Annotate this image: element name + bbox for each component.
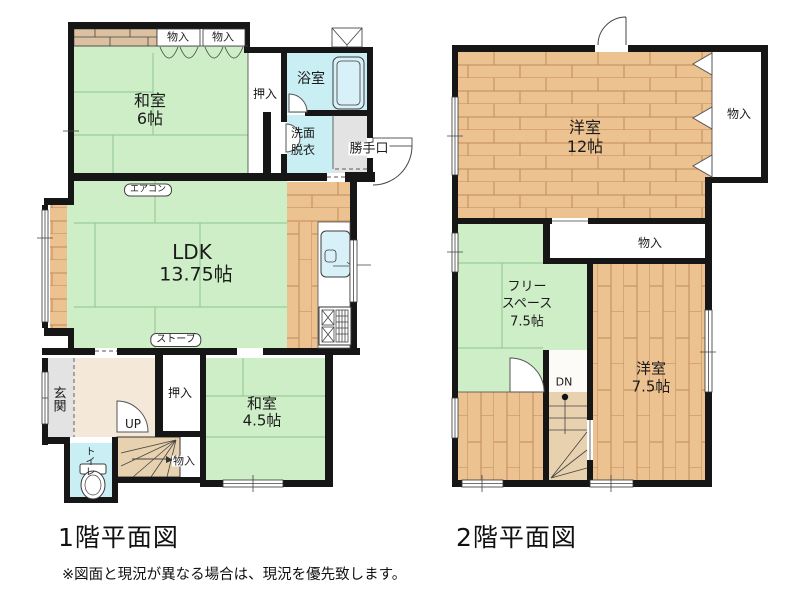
floor1-drawing: [37, 22, 412, 503]
entrance-label: 玄関: [52, 386, 65, 412]
yoshitsu75-name: 洋室: [636, 362, 666, 377]
washitsu45-name: 和室: [247, 397, 277, 412]
freespace-label-2: スペース: [502, 298, 552, 311]
bathtub-icon: [333, 57, 364, 109]
storage-b-label: 物入: [212, 32, 234, 43]
ldk-name: LDK: [172, 242, 212, 262]
floorplan-canvas: 物入 物入 和室 6帖 押入 浴室 洗面 脱衣 勝手口 エアコン LDK 13.…: [0, 0, 800, 597]
dn-label: DN: [556, 377, 573, 388]
storage-right-label: 物入: [727, 108, 751, 120]
closet-top-label: 押入: [253, 88, 277, 100]
bathroom-label: 浴室: [297, 72, 325, 86]
washitsu45-size: 4.5帖: [243, 414, 282, 429]
floorplan-drawing: [0, 0, 800, 597]
yoshitsu12-name: 洋室: [569, 120, 601, 136]
stairs-down: [549, 350, 587, 480]
storage-stairs-label: 物入: [172, 456, 196, 467]
toilet-label: トイレ: [83, 446, 93, 476]
disclaimer-note: ※図面と現況が異なる場合は、現況を優先致します。: [62, 563, 406, 584]
backdoor-label: 勝手口: [348, 143, 389, 156]
freespace-label-1: フリー: [507, 281, 546, 294]
floor2-drawing: [447, 17, 768, 492]
yoshitsu75-size: 7.5帖: [632, 380, 671, 395]
freespace-size: 7.5帖: [510, 316, 544, 329]
stove-icon: [319, 307, 351, 345]
washroom-label-1: 洗面: [291, 127, 315, 139]
kitchen-sink-icon: [321, 231, 352, 277]
up-label: UP: [125, 418, 141, 430]
floor1-title: 1階平面図: [58, 518, 179, 554]
washroom-label-2: 脱衣: [291, 144, 315, 156]
floor2-title: 2階平面図: [456, 518, 577, 554]
closet-bottom-label: 押入: [168, 387, 192, 399]
storage-a-label: 物入: [167, 32, 189, 43]
ldk-size: 13.75帖: [159, 266, 232, 285]
storage-mid-floor: [550, 224, 705, 258]
aircon-label: エアコン: [124, 184, 172, 197]
floor2-entry-door-arc: [595, 17, 628, 52]
bathroom-window-icon: [332, 28, 362, 47]
washitsu6-name: 和室: [134, 93, 166, 109]
yoshitsu12-size: 12帖: [567, 139, 603, 155]
stove-label: ストーブ: [150, 333, 201, 347]
storage-mid-label: 物入: [638, 237, 662, 249]
washitsu6-size: 6帖: [137, 111, 163, 127]
